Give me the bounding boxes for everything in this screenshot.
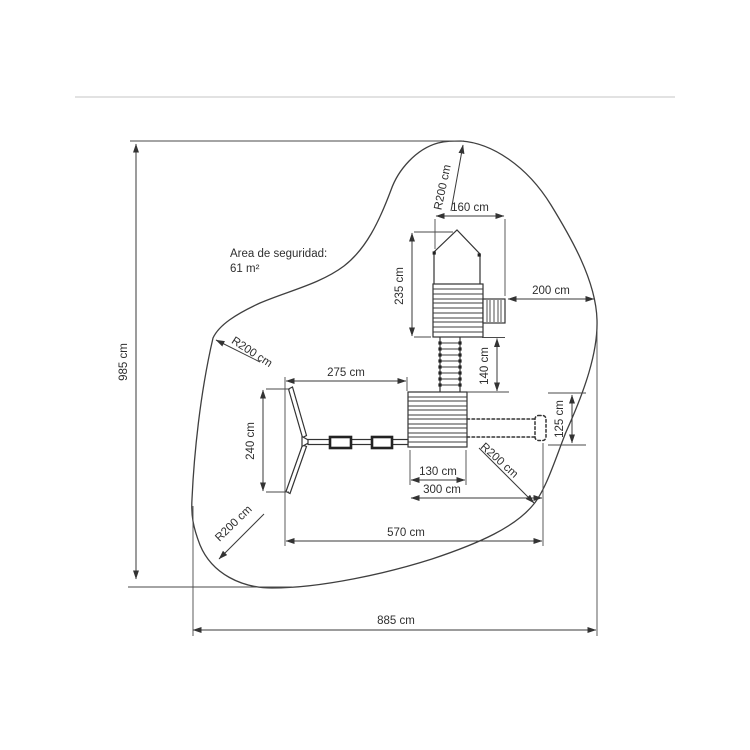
dim-label-overall-span: 570 cm (387, 527, 425, 539)
dim-label-swing-depth: 240 cm (245, 422, 257, 460)
platform-deck (408, 392, 467, 447)
dim-label-slide-clearance: 125 cm (554, 400, 566, 438)
dim-label-deck-width: 130 cm (419, 466, 457, 478)
swing-leg-upper (289, 387, 307, 438)
swing-frame (286, 387, 408, 494)
playground-safety-plan: Area de seguridad: 61 m² 985 cm 885 cm 1… (0, 0, 750, 750)
radius-label-bottom-right: R200 cm (478, 441, 520, 481)
swing-seat (372, 437, 392, 448)
radius-label-bottom-left: R200 cm (213, 504, 254, 545)
dimension-lines (136, 144, 596, 630)
ladder (438, 337, 461, 392)
technical-drawing-canvas: Area de seguridad: 61 m² 985 cm 885 cm 1… (0, 0, 750, 750)
labels: Area de seguridad: 61 m² 985 cm 885 cm 1… (118, 164, 570, 627)
safety-area-outline (192, 141, 597, 588)
extension-lines (128, 141, 597, 636)
dim-label-total-width: 885 cm (377, 615, 415, 627)
ladder-bolts (438, 341, 461, 386)
dim-label-tower-height: 235 cm (394, 267, 406, 305)
dim-label-tower-width: 160 cm (451, 202, 489, 214)
dim-label-deck-plus-slide: 300 cm (423, 484, 461, 496)
tower-roof (433, 230, 481, 284)
dim-label-ladder-length: 140 cm (479, 347, 491, 385)
climbing-wall (483, 299, 505, 323)
dim-label-clearance-right: 200 cm (532, 285, 570, 297)
dim-label-swing-span: 275 cm (327, 367, 365, 379)
dim-label-total-height: 985 cm (118, 343, 130, 381)
tower-body (433, 284, 483, 337)
radius-label-left: R200 cm (229, 335, 274, 370)
swing-seat (330, 437, 351, 448)
swing-leg-lower (286, 445, 307, 494)
slide (467, 416, 546, 441)
area-label-line2: 61 m² (230, 263, 260, 275)
area-label-line1: Area de seguridad: (230, 248, 327, 260)
